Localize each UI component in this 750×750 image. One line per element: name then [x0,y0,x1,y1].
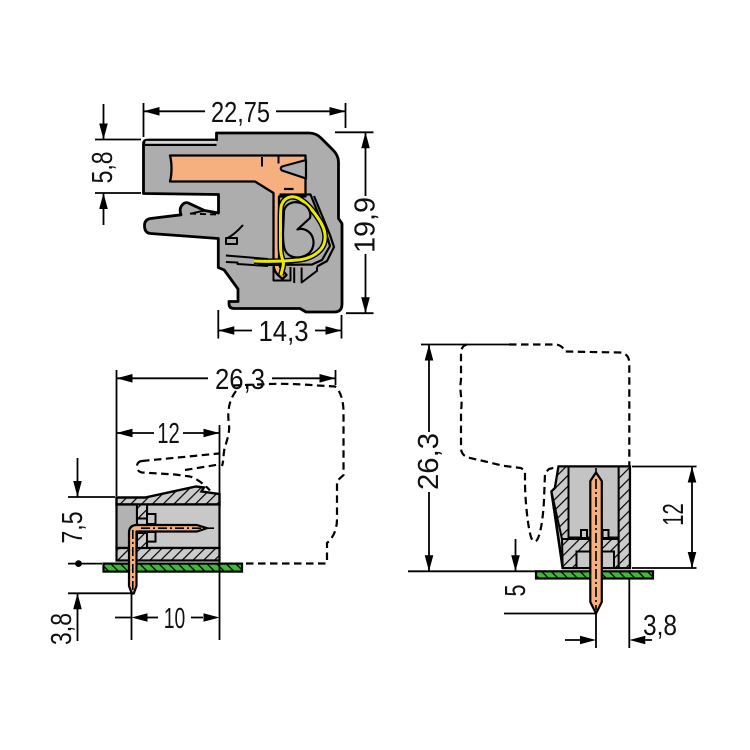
svg-text:3,8: 3,8 [46,613,78,645]
svg-text:26,3: 26,3 [215,364,265,396]
svg-text:3,8: 3,8 [643,610,677,642]
svg-text:12: 12 [157,418,180,450]
svg-text:22,75: 22,75 [211,97,270,129]
svg-text:7,5: 7,5 [57,512,89,544]
svg-text:5,8: 5,8 [87,151,119,183]
svg-text:5: 5 [500,585,532,597]
svg-text:26,3: 26,3 [413,433,445,490]
svg-text:10: 10 [164,603,186,635]
svg-text:14,3: 14,3 [259,316,309,348]
svg-text:19,9: 19,9 [350,197,382,253]
svg-text:12: 12 [658,503,690,526]
